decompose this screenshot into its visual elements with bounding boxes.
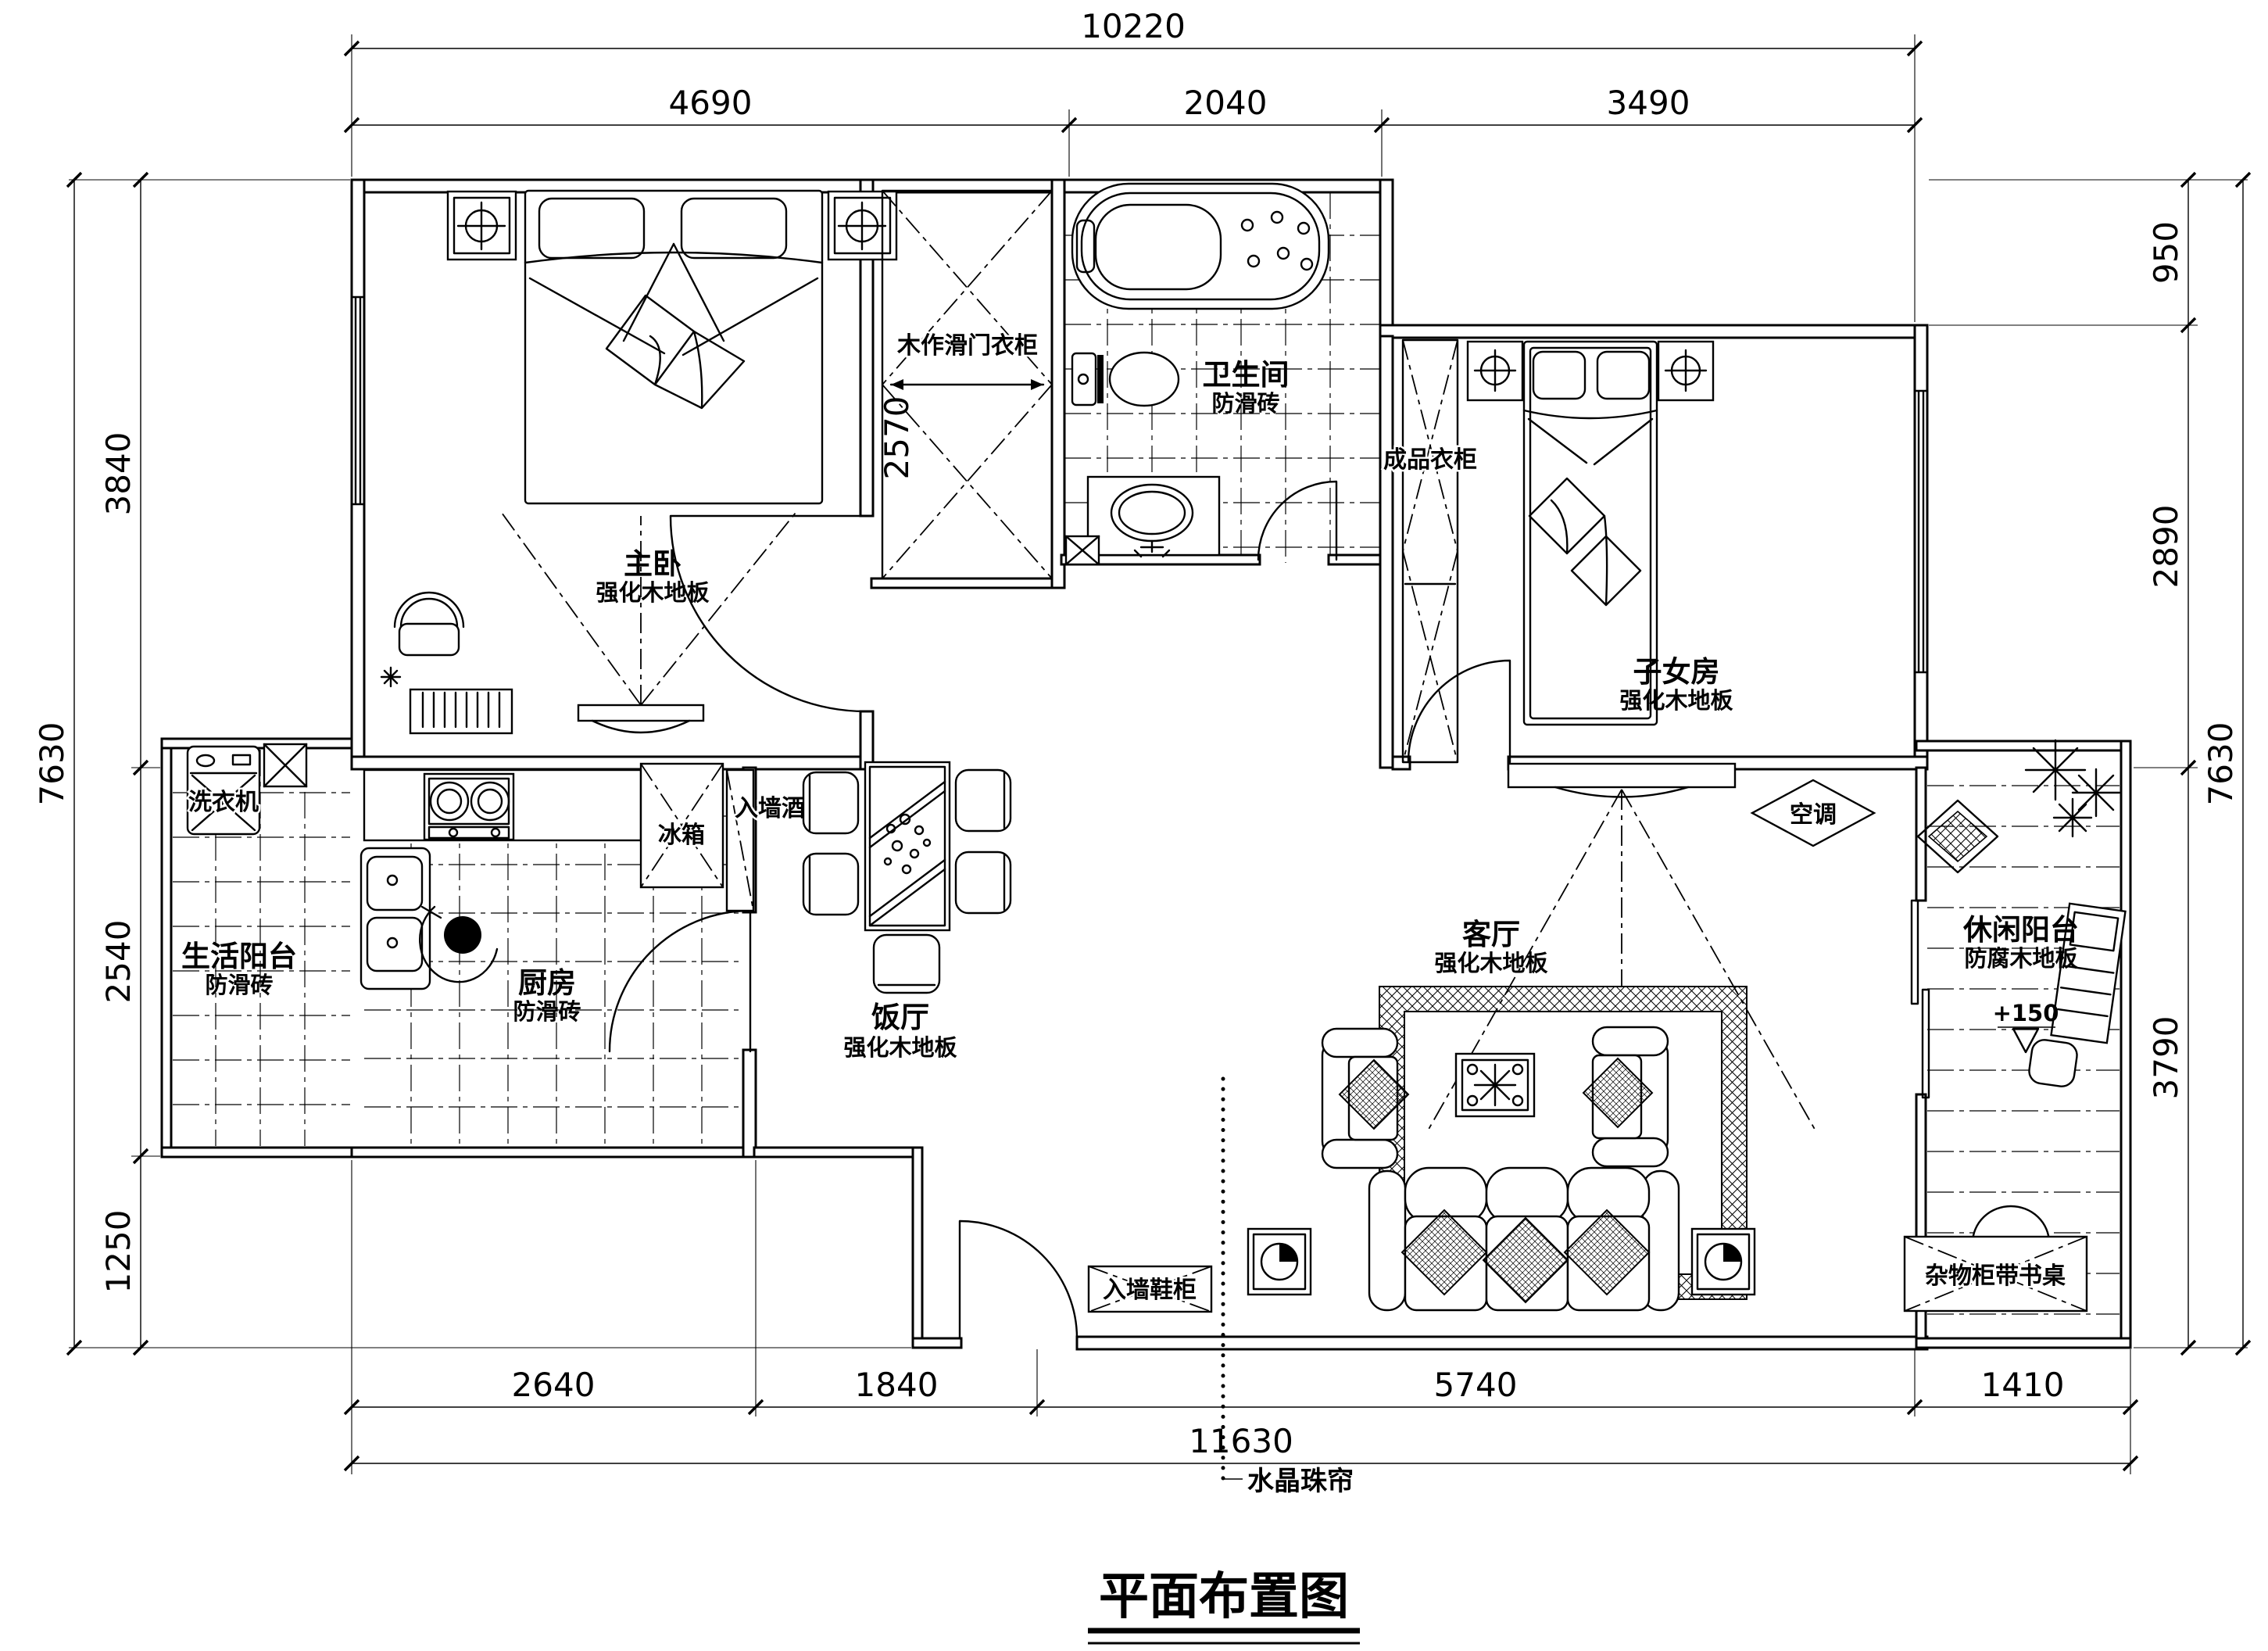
drawing-title: 平面布置图 (1088, 1568, 1360, 1643)
dim-bottom-seg-2: 5740 (1434, 1366, 1518, 1404)
lamp-table-icon (1248, 1229, 1311, 1295)
room-label-bath: 卫生间 (1203, 358, 1290, 392)
dim-wardrobe-depth: 2570 (878, 396, 916, 480)
dining-chair-icon (956, 852, 1011, 913)
floor-plan-canvas: 主卧 强化木地板 木作滑门衣柜 2570 (0, 0, 2268, 1651)
room-label-leisure-balcony: 休闲阳台 (1962, 913, 2079, 947)
dim-right-seg-1: 2890 (2147, 505, 2185, 589)
floor-label-kitchen: 防滑砖 (513, 998, 581, 1025)
room-label-child: 子女房 (1633, 655, 1720, 689)
dim-top-seg-2: 3490 (1607, 84, 1690, 122)
annotation-storage-desk: 杂物柜带书桌 (1925, 1262, 2066, 1290)
dining-chair-icon (874, 935, 939, 993)
nightstand-icon (1468, 342, 1522, 400)
washing-machine-icon: 洗衣机 (188, 747, 259, 834)
dim-bottom-overall: 11630 (1189, 1422, 1293, 1460)
armchair-icon (1322, 1029, 1408, 1168)
annotation-ready-wardrobe: 成品衣柜 (1383, 446, 1477, 474)
toilet-icon (1072, 353, 1179, 406)
annotation-air-conditioner: 空调 (1790, 801, 1837, 829)
dim-bottom-seg-3: 1410 (1981, 1366, 2065, 1404)
room-label-master: 主卧 (624, 547, 681, 581)
floor-label-child: 强化木地板 (1619, 687, 1733, 714)
dim-left-seg-2: 1250 (99, 1210, 138, 1294)
coffee-table-icon (1456, 1054, 1534, 1116)
dim-top-overall: 10220 (1081, 7, 1186, 45)
annotation-fridge: 冰箱 (658, 822, 705, 849)
armchair-icon (1583, 1027, 1668, 1166)
nightstand-icon (1658, 342, 1713, 400)
dining-chair-icon (956, 770, 1011, 831)
dim-bottom-seg-0: 2640 (512, 1366, 596, 1404)
floor-label-dining: 强化木地板 (843, 1034, 957, 1061)
annotation-shoe-cabinet: 入墙鞋柜 (1103, 1277, 1197, 1304)
dim-bottom-seg-1: 1840 (855, 1366, 939, 1404)
dim-left-overall: 7630 (33, 722, 71, 806)
floor-label-leisure-balcony: 防腐木地板 (1964, 945, 2078, 972)
floor-label-bath: 防滑砖 (1211, 390, 1279, 417)
desk-chair-icon (2027, 1038, 2078, 1088)
dim-top-seg-0: 4690 (669, 84, 753, 122)
sofa-icon (1369, 1168, 1679, 1310)
room-label-service-balcony: 生活阳台 (181, 940, 297, 973)
gas-stove-icon (424, 774, 513, 840)
dim-left-seg-1: 2540 (99, 920, 138, 1004)
lamp-table-icon (1692, 1229, 1755, 1295)
room-label-living: 客厅 (1462, 918, 1520, 951)
nightstand-icon (448, 192, 516, 260)
page-title: 平面布置图 (1099, 1568, 1349, 1626)
dining-chair-icon (803, 772, 858, 833)
level-value: +150 (1993, 1000, 2059, 1026)
floor-label-master: 强化木地板 (596, 579, 710, 606)
dining-table-icon (865, 762, 950, 930)
nightstand-icon (828, 192, 896, 260)
annotation-sliding-wardrobe: 木作滑门衣柜 (896, 332, 1038, 360)
room-label-dining: 饭厅 (871, 1001, 929, 1034)
room-label-kitchen: 厨房 (518, 966, 576, 1000)
bathtub-icon (1072, 184, 1329, 309)
dim-right-overall: 7630 (2202, 722, 2240, 806)
dim-right-seg-2: 3790 (2147, 1016, 2185, 1100)
floor-label-service-balcony: 防滑砖 (205, 972, 273, 998)
water-heater-icon (264, 744, 306, 786)
shoe-cabinet: 入墙鞋柜 (1089, 1266, 1211, 1312)
dim-right-seg-0: 950 (2147, 221, 2185, 284)
annotation-bead-curtain: 水晶珠帘 (1247, 1466, 1354, 1497)
annotation-washing-machine: 洗衣机 (188, 789, 259, 816)
dim-top-seg-1: 2040 (1184, 84, 1268, 122)
double-bed-icon (525, 191, 822, 503)
floor-drain-icon (1066, 536, 1099, 564)
dim-left-seg-0: 3840 (99, 432, 138, 516)
fridge-icon: 冰箱 (641, 764, 723, 887)
dining-chair-icon (803, 854, 858, 915)
floor-label-living: 强化木地板 (1434, 950, 1548, 976)
vanity-sink-icon (1088, 477, 1219, 557)
